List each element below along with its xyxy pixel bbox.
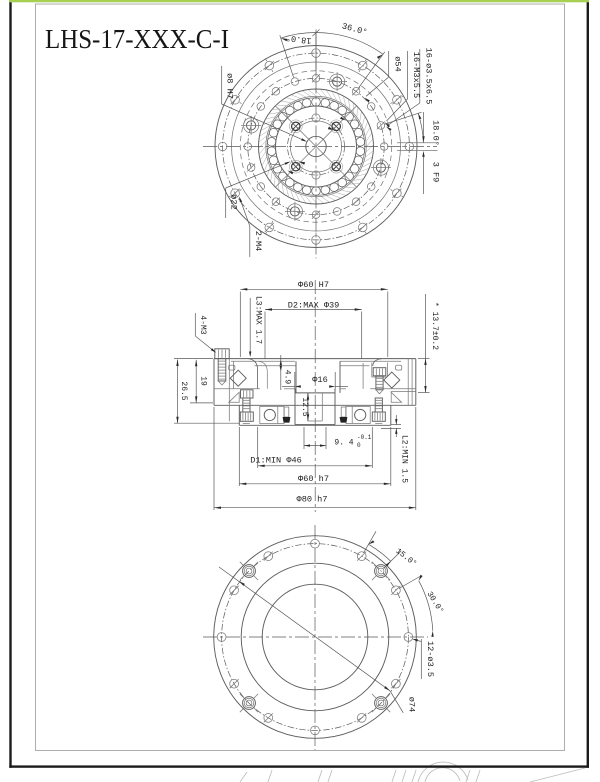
svg-text:Φ60 h7: Φ60 h7 (298, 474, 329, 484)
svg-text:12.5: 12.5 (300, 397, 309, 416)
svg-text:ø74: ø74 (407, 697, 417, 712)
svg-text:ø54: ø54 (392, 56, 402, 71)
svg-text:2-M4: 2-M4 (253, 231, 263, 252)
svg-text:16-ø3.5x6.5: 16-ø3.5x6.5 (423, 48, 433, 105)
svg-text:L3:MAX 1.7: L3:MAX 1.7 (253, 296, 262, 344)
svg-text:* 13.7±0.2: * 13.7±0.2 (430, 302, 439, 350)
svg-text:4-M3: 4-M3 (198, 315, 207, 334)
svg-text:LHS-17-XXX-C-I: LHS-17-XXX-C-I (45, 24, 229, 54)
svg-text:Φ60 H7: Φ60 H7 (298, 280, 329, 290)
svg-text:Φ80 h7: Φ80 h7 (297, 494, 328, 504)
svg-text:L2:MIN 1.5: L2:MIN 1.5 (400, 435, 409, 483)
svg-text:ø22: ø22 (229, 194, 239, 209)
svg-text:9. 4: 9. 4 (334, 438, 353, 447)
svg-text:12-ø3.5: 12-ø3.5 (425, 641, 435, 677)
svg-text:18.0°: 18.0° (431, 120, 441, 146)
svg-text:16-M3x5.5: 16-M3x5.5 (411, 52, 421, 98)
svg-text:0: 0 (357, 442, 361, 449)
svg-text:26.5: 26.5 (179, 381, 188, 400)
svg-text:3 F9: 3 F9 (431, 162, 441, 183)
svg-text:-0.1: -0.1 (357, 434, 372, 441)
svg-text:19: 19 (199, 376, 208, 386)
svg-text:D1:MIN Φ46: D1:MIN Φ46 (250, 455, 302, 465)
svg-text:4.9: 4.9 (282, 370, 291, 385)
svg-text:ø8 H7: ø8 H7 (225, 73, 235, 99)
svg-text:D2:MAX Φ39: D2:MAX Φ39 (288, 300, 340, 310)
svg-text:Φ16: Φ16 (312, 375, 327, 385)
